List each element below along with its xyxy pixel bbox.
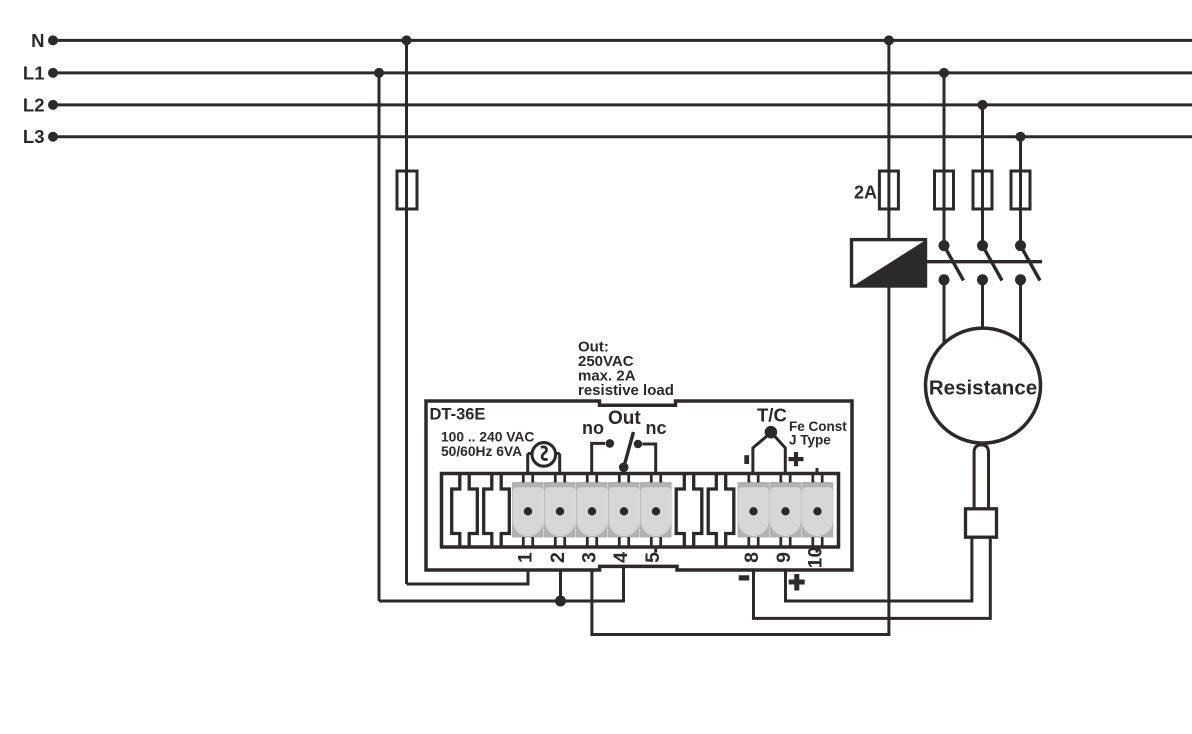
svg-text:resistive load: resistive load: [578, 382, 674, 399]
svg-text:nc: nc: [646, 418, 667, 438]
svg-text:8: 8: [741, 552, 763, 563]
svg-text:1: 1: [515, 552, 537, 563]
svg-text:L2: L2: [23, 95, 45, 116]
svg-text:J Type: J Type: [789, 433, 831, 448]
svg-text:2: 2: [547, 552, 569, 563]
svg-text:2A: 2A: [854, 183, 877, 203]
svg-text:4: 4: [610, 552, 632, 563]
svg-text:3: 3: [578, 552, 600, 563]
svg-text:50/60Hz 6VA: 50/60Hz 6VA: [441, 444, 522, 459]
svg-text:L1: L1: [23, 63, 45, 84]
svg-text:Out: Out: [608, 408, 641, 429]
svg-text:9: 9: [773, 552, 795, 563]
svg-text:Resistance: Resistance: [929, 377, 1037, 400]
svg-text:10: 10: [805, 547, 827, 569]
svg-text:100 .. 240 VAC: 100 .. 240 VAC: [441, 430, 534, 445]
svg-text:5: 5: [642, 552, 664, 563]
svg-text:T/C: T/C: [757, 405, 787, 426]
svg-text:no: no: [582, 418, 604, 438]
svg-text:L3: L3: [23, 126, 45, 147]
svg-text:DT-36E: DT-36E: [430, 406, 486, 424]
svg-text:N: N: [31, 30, 44, 51]
